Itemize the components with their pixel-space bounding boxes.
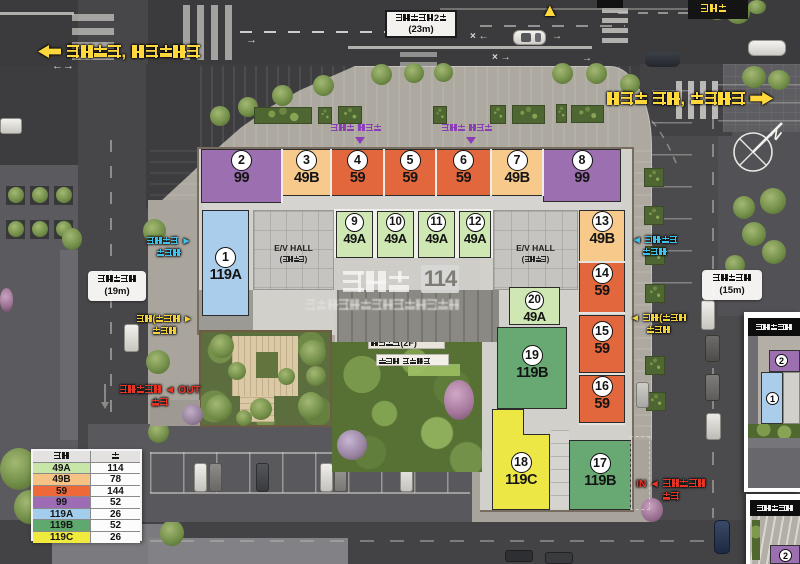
svg-text:N: N	[767, 125, 785, 144]
